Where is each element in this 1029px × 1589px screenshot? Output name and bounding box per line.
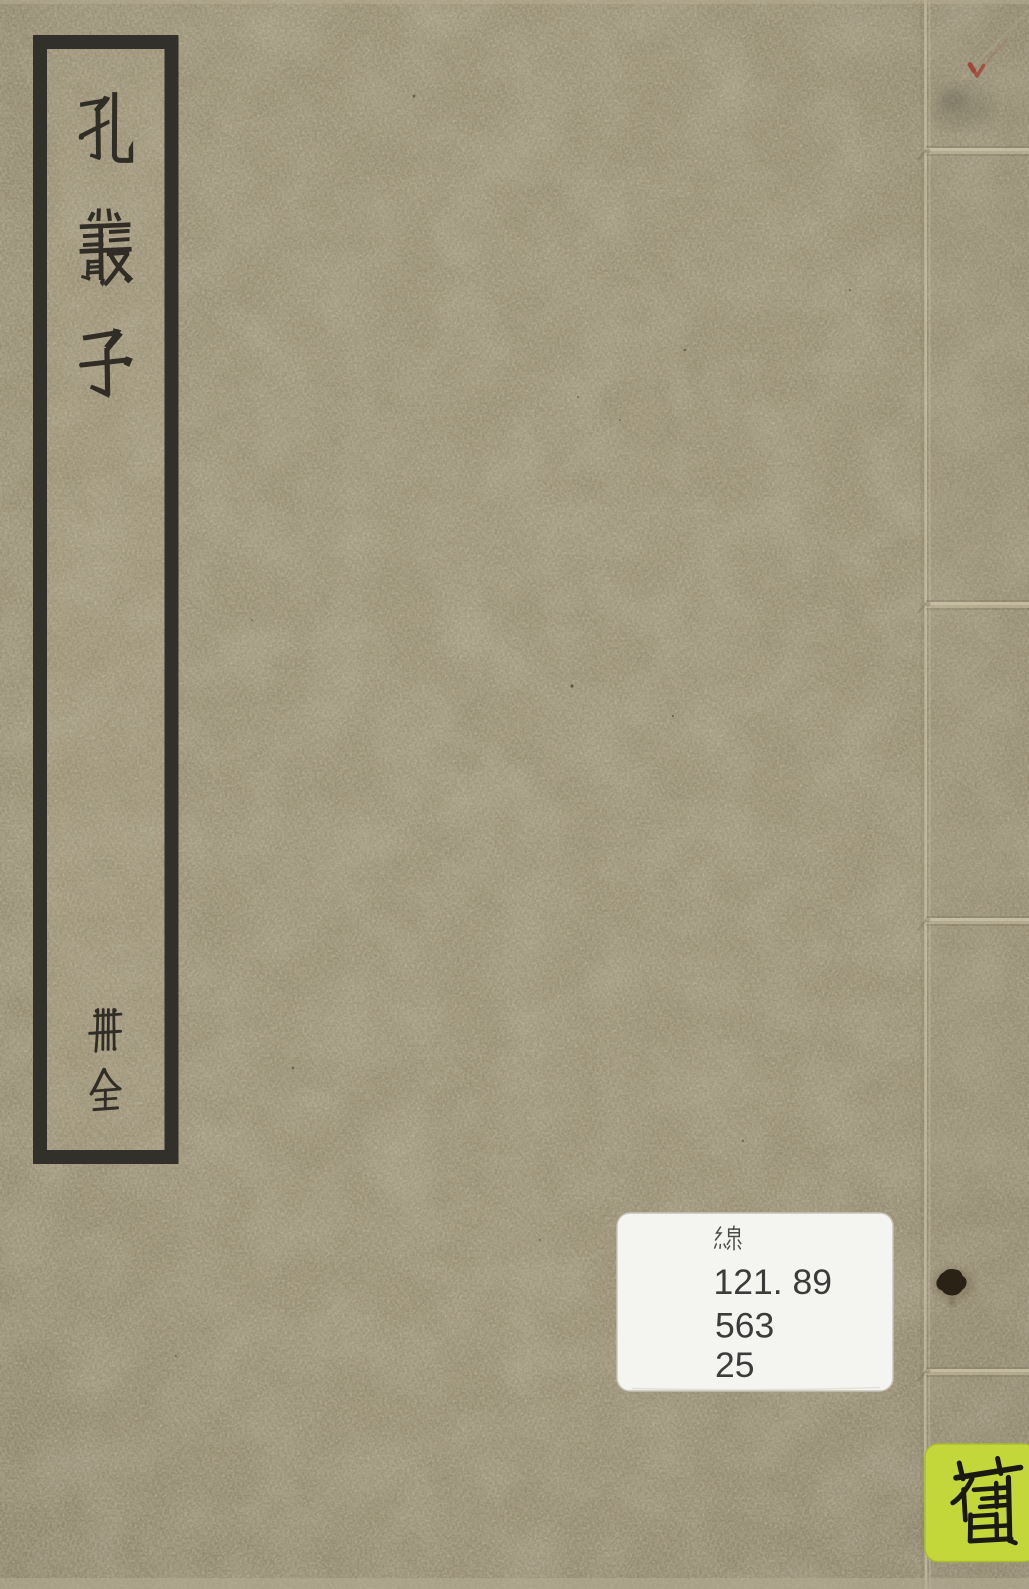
svg-text:121. 89: 121. 89 [714, 1262, 832, 1302]
svg-text:563: 563 [715, 1306, 774, 1346]
svg-text:25: 25 [715, 1345, 755, 1385]
